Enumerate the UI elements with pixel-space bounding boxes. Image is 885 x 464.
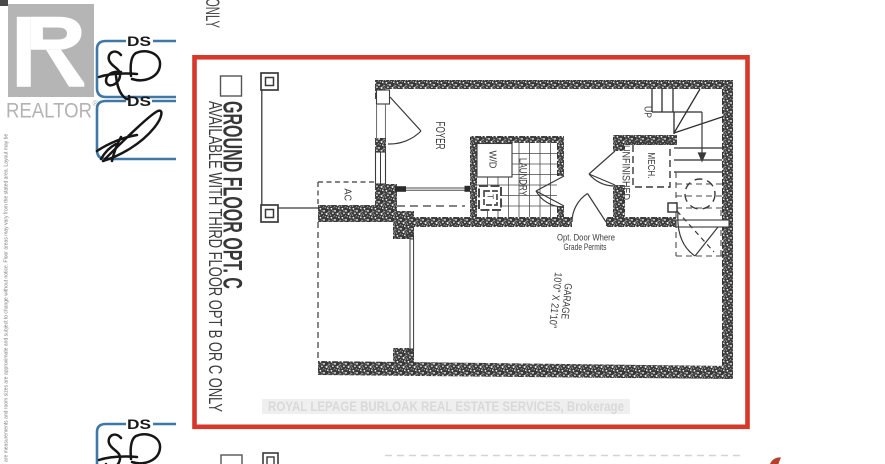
svg-text:ONLY: ONLY — [201, 0, 223, 28]
svg-text:LAUNDRY: LAUNDRY — [517, 158, 529, 196]
svg-text:T: T — [486, 194, 496, 199]
svg-text:REALTOR: REALTOR — [6, 99, 92, 123]
svg-text:MECH.: MECH. — [645, 153, 656, 179]
svg-text:AC: AC — [342, 189, 354, 202]
svg-text:ROYAL LEPAGE BURLOAK REAL ESTA: ROYAL LEPAGE BURLOAK REAL ESTATE SERVICE… — [268, 399, 624, 414]
svg-text:DS: DS — [127, 33, 151, 49]
svg-text:FOYER: FOYER — [433, 122, 447, 150]
svg-text:are measurements and room size: are measurements and room sizes are appr… — [4, 134, 10, 462]
svg-text:W/D: W/D — [487, 151, 499, 169]
svg-text:AVAILABLE WITH THIRD FLOOR OPT: AVAILABLE WITH THIRD FLOOR OPT B OR C ON… — [205, 101, 226, 412]
svg-text:UP: UP — [642, 106, 653, 118]
svg-text:DS: DS — [127, 416, 151, 432]
svg-text:Opt. Door Where: Opt. Door Where — [557, 233, 615, 243]
svg-text:UNFINISHED: UNFINISHED — [620, 145, 632, 200]
svg-text:Grade Permits: Grade Permits — [564, 242, 607, 252]
svg-text:DS: DS — [127, 93, 151, 109]
